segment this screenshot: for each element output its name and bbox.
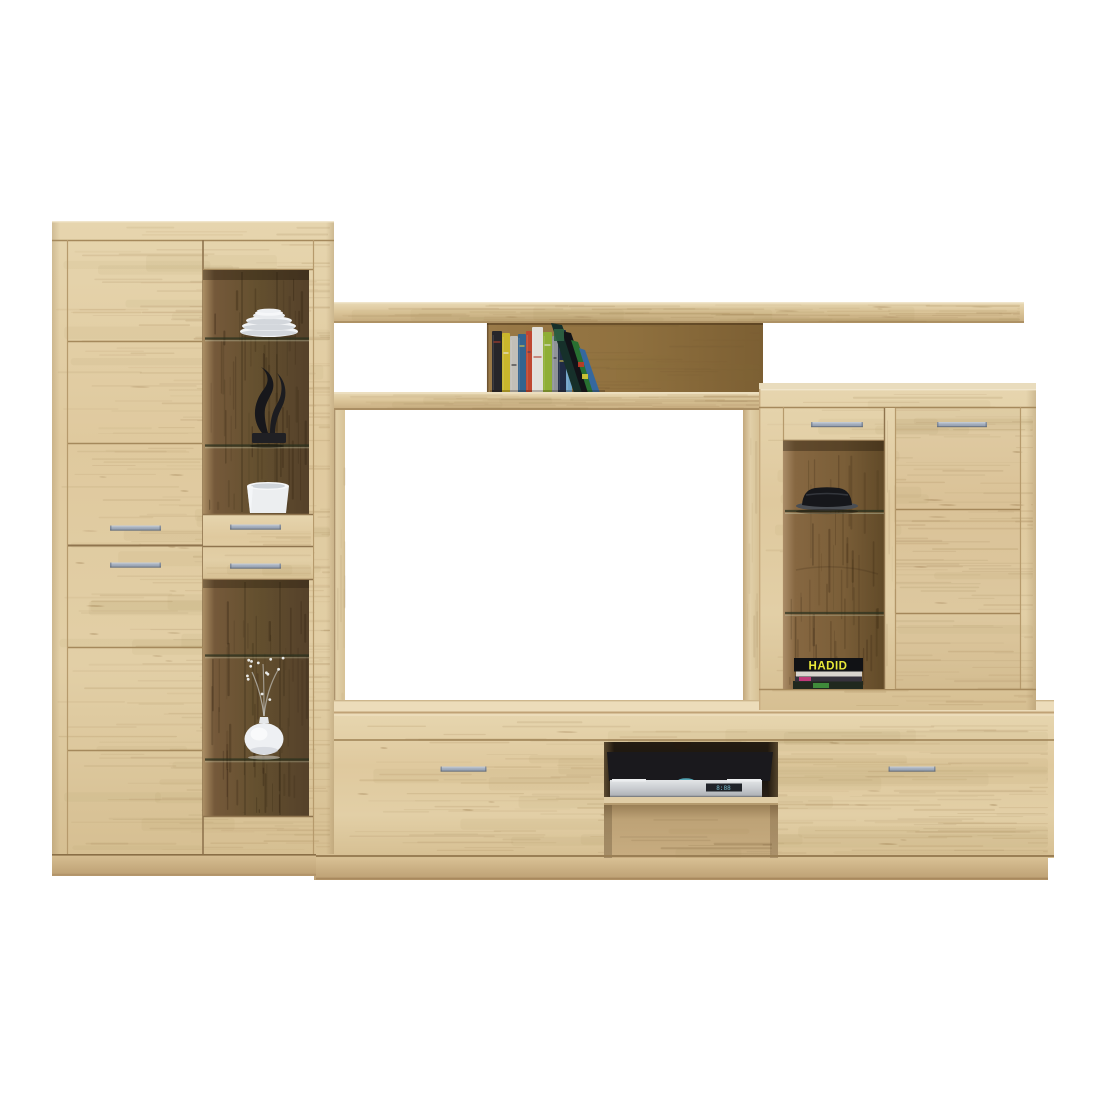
svg-text:8:88: 8:88 bbox=[716, 785, 731, 792]
svg-text:HADID: HADID bbox=[809, 661, 848, 673]
